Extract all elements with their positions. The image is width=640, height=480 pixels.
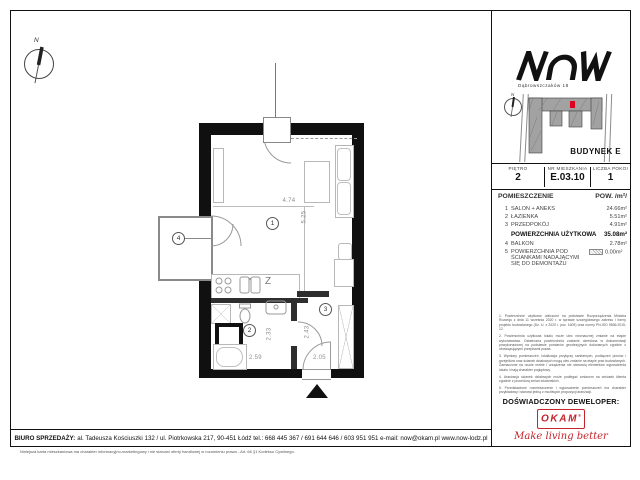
demolition-wall-legend-icon [589, 249, 603, 255]
floor-value: 2 [492, 172, 544, 183]
balcony-door-arc-2 [211, 224, 233, 246]
okam-logo-text: OKAM® [541, 413, 581, 424]
bathtub [213, 344, 247, 370]
row-no: 5 [498, 249, 511, 267]
desk [304, 161, 330, 203]
fine-print-paragraph: 1. Powierzchnie użytkowe obliczone na po… [499, 314, 626, 332]
bathroom-east-wall-lower [291, 346, 297, 369]
hall-north-wall [297, 291, 329, 297]
side-table [334, 259, 354, 287]
bathroom-east-wall-upper [291, 298, 297, 321]
dishwasher-label: Z [265, 276, 271, 287]
apartment-label: NR MIESZKANIA [545, 166, 590, 171]
apartment-value: E.03.10 [545, 172, 590, 183]
entrance-door-leaf [330, 342, 331, 369]
row-area-value: 0.00m² [605, 249, 622, 255]
row-no: 4 [498, 241, 511, 247]
schedule-row: 3 PRZEDPOKÓJ 4.91m² [498, 222, 627, 228]
rooms-cell: LICZBA POKOI 1 [591, 166, 630, 188]
dim-bathroom-height: 2.33 [266, 328, 272, 341]
row-no [498, 231, 511, 238]
chair [338, 243, 352, 260]
room-4-marker: 4 [172, 232, 185, 245]
entrance-door-arc [303, 342, 331, 370]
room-1-marker: 1 [266, 217, 279, 230]
row-name: PRZEDPOKÓJ [511, 222, 610, 228]
row-name: POWIERZCHNIA POD ŚCIANKAMI NADAJĄCYMI SI… [511, 249, 589, 267]
wall-bottom-right [331, 369, 364, 378]
schedule-header-name: POMIESZCZENIE [498, 193, 554, 200]
row-area: 2.78m² [610, 241, 627, 247]
wall-left-upper [199, 123, 211, 216]
divider [491, 163, 630, 164]
sofa-cushion [337, 182, 351, 215]
row-name: ŁAZIENKA [511, 214, 610, 220]
total-label: POWIERZCHNIA UŻYTKOWA [511, 231, 604, 238]
dim-salon-height: 5.25 [301, 211, 307, 224]
schedule-header-area: POW. /m²/ [595, 193, 627, 200]
hall-wardrobe [338, 305, 354, 369]
schedule-row: 2 ŁAZIENKA 5.51m² [498, 214, 627, 220]
section-line [275, 63, 276, 117]
registered-mark: ® [578, 413, 581, 418]
legal-fine-print: 1. Powierzchnie użytkowe obliczone na po… [499, 314, 626, 397]
dim-hall-height: 2.43 [304, 326, 310, 339]
balcony-outline [158, 216, 213, 281]
room-3-marker: 3 [319, 303, 332, 316]
wardrobe [213, 148, 224, 203]
total-area: 35.08m² [604, 231, 627, 238]
row-name: BALKON [511, 241, 610, 247]
unit-marker [570, 101, 575, 108]
fine-print-paragraph: 5. Przedstawione rozmieszczenie i wyposa… [499, 386, 626, 395]
fine-print-paragraph: 3. Wymiary pomieszczeń, lokalizacja przy… [499, 354, 626, 372]
apartment-card-page: N 4 [0, 0, 640, 480]
divider [491, 189, 630, 190]
dim-line-horizontal [213, 206, 314, 207]
room-2-marker: 2 [243, 324, 256, 337]
row-area: 4.91m² [610, 222, 627, 228]
dim-bathroom-width: 2.59 [249, 355, 262, 361]
sofa [335, 145, 354, 218]
row-no: 3 [498, 222, 511, 228]
room-4-leader [183, 238, 211, 239]
wall-bottom-left [199, 369, 302, 378]
roof-dashed-line [291, 138, 357, 139]
entrance-threshold [302, 369, 331, 380]
row-name: SALON + ANEKS [511, 206, 606, 212]
map-compass-needle-icon [504, 94, 520, 119]
stove-icon [213, 275, 235, 297]
sales-office-bar: BIURO SPRZEDAŻY: al. Tadeusza Kościuszki… [11, 429, 491, 447]
schedule-row: 5 POWIERZCHNIA POD ŚCIANKAMI NADAJĄCYMI … [498, 249, 627, 267]
floor-label: PIĘTRO [492, 166, 544, 171]
rooms-label: LICZBA POKOI [591, 166, 630, 171]
apartment-cell: NR MIESZKANIA E.03.10 [545, 166, 590, 188]
schedule-total-row: POWIERZCHNIA UŻYTKOWA 35.08m² [498, 231, 627, 238]
washbasin-icon [265, 300, 287, 315]
okam-letters: OKAM [541, 414, 578, 425]
developer-tagline: Make living better [492, 431, 630, 442]
sidebar-divider [491, 11, 492, 446]
developer-heading: DOŚWIADCZONY DEWELOPER: [492, 397, 630, 406]
dim-salon-width: 4.74 [269, 198, 309, 204]
fine-print-paragraph: 2. Powierzchnia użytkowa lokalu może ule… [499, 334, 626, 352]
entrance-arrow-icon [306, 384, 328, 398]
row-no: 1 [498, 206, 511, 212]
kitchen-sink-icon [239, 275, 261, 296]
floor-cell: PIĘTRO 2 [492, 166, 544, 188]
card-disclaimer: Niniejsza karta mieszkaniowa ma charakte… [20, 449, 295, 454]
top-shaft [263, 117, 291, 143]
floor-plan: N 4 [11, 11, 491, 429]
schedule-row: 1 SALON + ANEKS 24.66m² [498, 206, 627, 212]
bathtub-basin [216, 347, 243, 367]
info-table: PIĘTRO 2 NR MIESZKANIA E.03.10 LICZBA PO… [492, 166, 630, 188]
sales-office-text: al. Tadeusza Kościuszki 132 / ul. Piotrk… [77, 435, 487, 442]
row-area: 5.51m² [610, 214, 627, 220]
row-no: 2 [498, 214, 511, 220]
logo-subtitle: Dąbrowszczaków 18 [518, 83, 569, 88]
rooms-value: 1 [591, 172, 630, 183]
room-schedule: POMIESZCZENIE POW. /m²/ 1 SALON + ANEKS … [498, 193, 627, 269]
toilet-icon [237, 303, 253, 325]
sofa-cushion [337, 148, 351, 181]
card-frame: N 4 [10, 10, 631, 447]
washer-shaft [211, 304, 231, 324]
building-label: BUDYNEK E [551, 147, 621, 156]
okam-logo: OKAM® [537, 409, 585, 429]
sales-office-label: BIURO SPRZEDAŻY: [14, 435, 75, 442]
schedule-row: 4 BALKON 2.78m² [498, 241, 627, 247]
fine-print-paragraph: 4. Aranżacja ścianek działowych może pod… [499, 375, 626, 384]
row-area: 0.00m² [589, 249, 622, 267]
compass-needle-icon [24, 41, 52, 85]
now-logo [515, 51, 615, 81]
row-area: 24.66m² [606, 206, 627, 212]
